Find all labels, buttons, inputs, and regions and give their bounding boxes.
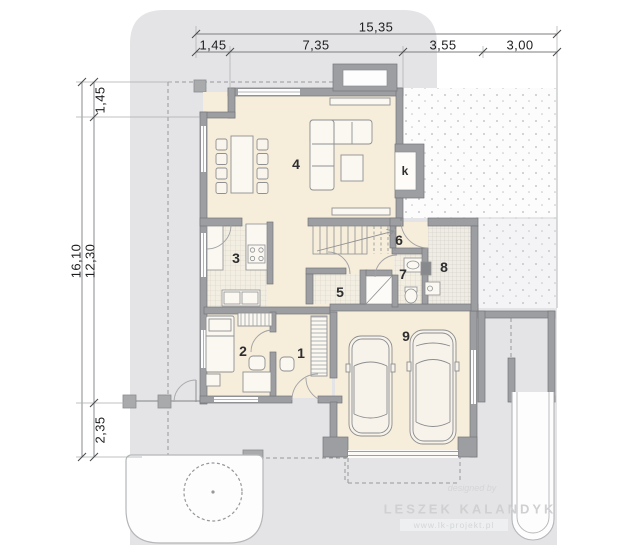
sideboard-top: [330, 98, 390, 105]
garden: [126, 455, 263, 543]
floor-plan-page: 15,35 1,45 7,35 3,55 3,00 16,10 12,30 1,…: [0, 0, 638, 556]
nightstand: [206, 374, 220, 386]
dim-seg-3: 3,55: [430, 38, 457, 53]
room-label-9: 9: [402, 328, 410, 344]
dim-total-width: 15,35: [359, 20, 394, 35]
dim-seg-1: 1,45: [200, 38, 227, 53]
room-label-6: 6: [395, 232, 403, 248]
dim-lower-height: 2,35: [93, 417, 108, 444]
porch-inner: [343, 70, 387, 86]
sideboard-bottom: [332, 208, 390, 215]
hall-chair: [280, 357, 294, 371]
desk: [243, 372, 271, 392]
dim-seg-4: 3,00: [507, 38, 534, 53]
room-label-1: 1: [297, 345, 305, 361]
room-label-8: 8: [440, 259, 448, 275]
watermark-website: www.lk-projekt.pl: [414, 520, 495, 530]
watermark-author: LESZEK KALANDYK: [384, 502, 557, 517]
fireplace-label: k: [402, 164, 409, 178]
room-label-4: 4: [292, 156, 300, 172]
coffee-table: [341, 155, 363, 181]
dim-inner-height: 12,30: [83, 244, 98, 279]
desk-chair: [249, 356, 265, 370]
walkway: [512, 392, 554, 540]
room-label-2: 2: [239, 343, 247, 359]
dim-seg-2: 7,35: [303, 38, 330, 53]
pillow: [209, 319, 231, 331]
lawn: [126, 455, 263, 543]
dim-upper-height: 1,45: [93, 87, 108, 114]
room-label-3: 3: [232, 250, 240, 266]
watermark-credit: designed by: [448, 483, 497, 493]
boiler: [421, 262, 431, 275]
room-label-7: 7: [399, 266, 407, 282]
toilet: [405, 289, 417, 303]
car-left: [346, 336, 395, 436]
dining-table: [231, 136, 253, 193]
car-right: [407, 330, 459, 444]
dim-total-height: 16,10: [69, 244, 84, 279]
room-label-5: 5: [336, 284, 344, 300]
